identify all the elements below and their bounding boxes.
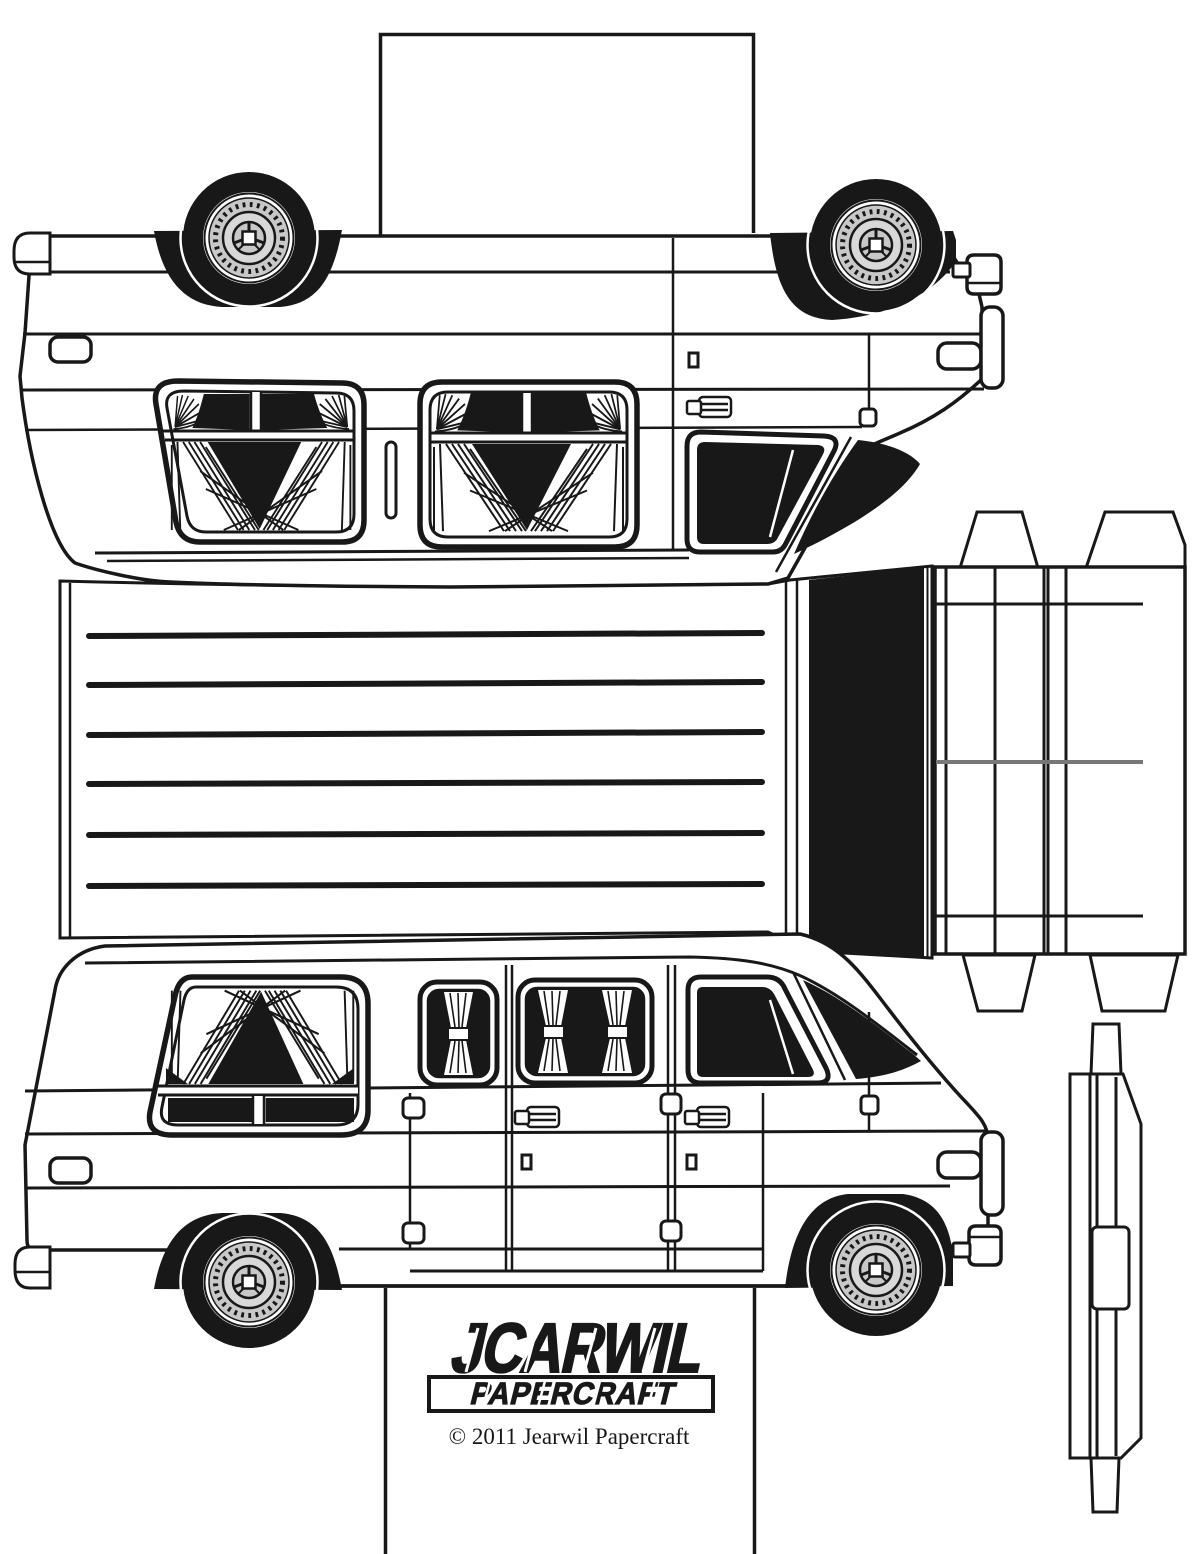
- svg-text:© 2011 Jearwil Papercraft: © 2011 Jearwil Papercraft: [449, 1424, 690, 1449]
